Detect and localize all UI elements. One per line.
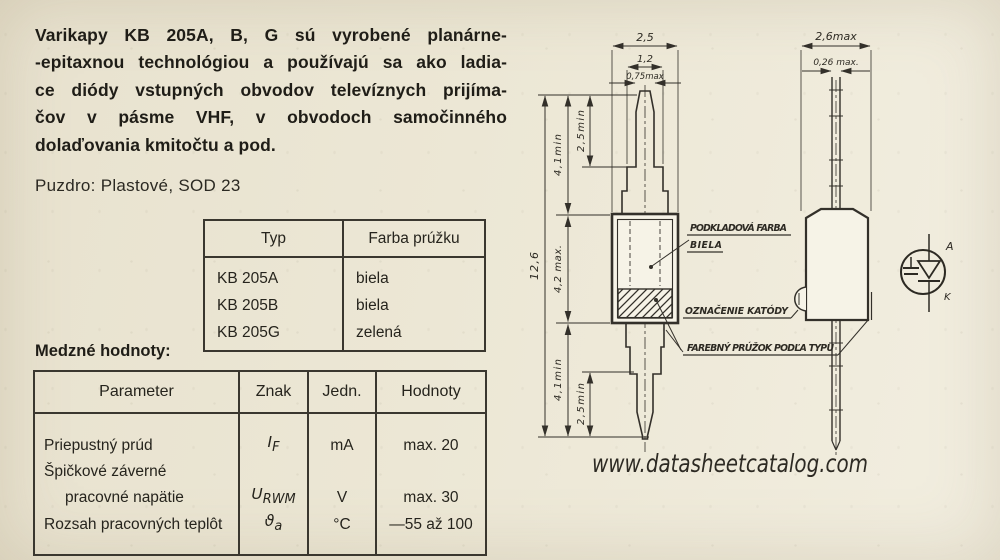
watermark: www.datasheetcatalog.com: [592, 449, 868, 478]
dim-lead-top: 4,1min: [553, 134, 564, 176]
limits-table: Parameter Znak Jedn. Hodnoty Priepustný …: [33, 370, 487, 556]
front-view: [612, 85, 678, 452]
symbol-base: ϑ: [265, 512, 275, 530]
parameter-cell: Rozsah pracovných teplôt: [34, 509, 239, 536]
anode-label: A: [945, 240, 954, 253]
varicap-symbol: [901, 234, 945, 312]
parameter-cell: pracovné napätie: [34, 483, 239, 509]
symbol-sub: F: [272, 440, 279, 455]
unit-cell: °C: [308, 509, 376, 536]
type-table-header-typ: Typ: [204, 220, 343, 257]
dim-side-lead-width: 0,26 max.: [813, 58, 858, 68]
side-view: [795, 46, 872, 455]
paragraph-line-2: -epitaxnou technológiou a používajú sa a…: [35, 49, 507, 76]
limits-header-znak: Znak: [239, 371, 308, 413]
color-cell: zelená: [343, 319, 485, 351]
symbol-sub: a: [274, 519, 282, 534]
parameter-cell: Priepustný prúd: [34, 413, 239, 457]
cathode-bump: [795, 287, 806, 311]
limits-header-jedn: Jedn.: [308, 371, 376, 413]
table-row: Špičkové záverné: [34, 457, 486, 483]
package-drawing: 2,5 1,2 0,75max 12,6 4,1min 2,5min 4,2 m…: [520, 0, 1000, 560]
symbol-cell: URWM: [239, 483, 308, 509]
paragraph-line-5: dolaďovania kmitočtu a pod.: [35, 132, 507, 159]
type-table-header-farba: Farba prúžku: [343, 220, 485, 257]
limits-title: Medzné hodnoty:: [35, 342, 171, 361]
value-cell: —55 až 100: [376, 509, 486, 536]
unit-cell: V: [308, 483, 376, 509]
dim-blade-bottom: 2,5min: [576, 383, 587, 425]
cathode-label: K: [944, 292, 952, 303]
paragraph-line-4: čov v pásme VHF, v obvodoch samočinného: [35, 104, 507, 131]
paragraph-line-1: Varikapy KB 205A, B, G sú vyrobené planá…: [35, 22, 507, 49]
value-cell: max. 30: [376, 483, 486, 509]
symbol-cell: ϑa: [239, 509, 308, 536]
symbol-base: U: [251, 485, 262, 503]
table-row: Priepustný prúd IF mA max. 20: [34, 413, 486, 457]
package-line: Puzdro: Plastové, SOD 23: [35, 176, 241, 196]
unit-cell: mA: [308, 413, 376, 457]
value-cell: max. 20: [376, 413, 486, 457]
limits-header-hodnoty: Hodnoty: [376, 371, 486, 413]
callout-base-color-2: BIELA: [690, 240, 723, 251]
diode-triangle: [918, 261, 940, 278]
table-row: KB 205B biela: [204, 292, 485, 319]
dim-body-height: 4,2 max.: [553, 245, 564, 293]
dim-shoulder-width: 1,2: [637, 54, 653, 65]
dim-side-width: 2,6max: [815, 30, 857, 43]
dim-body-width: 2,5: [636, 31, 654, 44]
symbol-cell: IF: [239, 413, 308, 457]
callout-base-color-1: PODKLADOVÁ FARBA: [690, 222, 788, 234]
table-row: KB 205G zelená: [204, 319, 485, 351]
color-cell: biela: [343, 292, 485, 319]
side-body: [806, 209, 868, 320]
table-row: Rozsah pracovných teplôt ϑa °C —55 až 10…: [34, 509, 486, 536]
type-cell: KB 205B: [204, 292, 343, 319]
color-cell: biela: [343, 257, 485, 292]
type-cell: KB 205G: [204, 319, 343, 351]
callout-cathode-mark: OZNAČENIE KATÓDY: [685, 305, 789, 317]
limits-header-parameter: Parameter: [34, 371, 239, 413]
type-cell: KB 205A: [204, 257, 343, 292]
symbol-circle: [901, 250, 945, 294]
datasheet-page: Varikapy KB 205A, B, G sú vyrobené planá…: [0, 0, 1000, 560]
color-stripe-band: [618, 289, 672, 318]
symbol-sub: RWM: [263, 492, 296, 507]
dim-total-length: 12,6: [528, 252, 541, 280]
dim-blade-top: 2,5min: [576, 110, 587, 152]
parameter-cell: Špičkové záverné: [34, 457, 239, 483]
paragraph-line-3: ce diódy vstupných obvodov televíznych p…: [35, 77, 507, 104]
side-dimension-labels: 2,6max 0,26 max.: [813, 30, 858, 68]
dim-lead-bottom: 4,1min: [553, 359, 564, 401]
table-row: pracovné napätie URWM V max. 30: [34, 483, 486, 509]
table-row: KB 205A biela: [204, 257, 485, 292]
dim-blade-width: 0,75max: [626, 72, 664, 82]
type-color-table: Typ Farba prúžku KB 205A biela KB 205B b…: [203, 219, 486, 352]
callout-stripe: FAREBNÝ PRÚŽOK PODĽA TYPU: [687, 342, 835, 354]
description-paragraph: Varikapy KB 205A, B, G sú vyrobené planá…: [35, 22, 507, 159]
